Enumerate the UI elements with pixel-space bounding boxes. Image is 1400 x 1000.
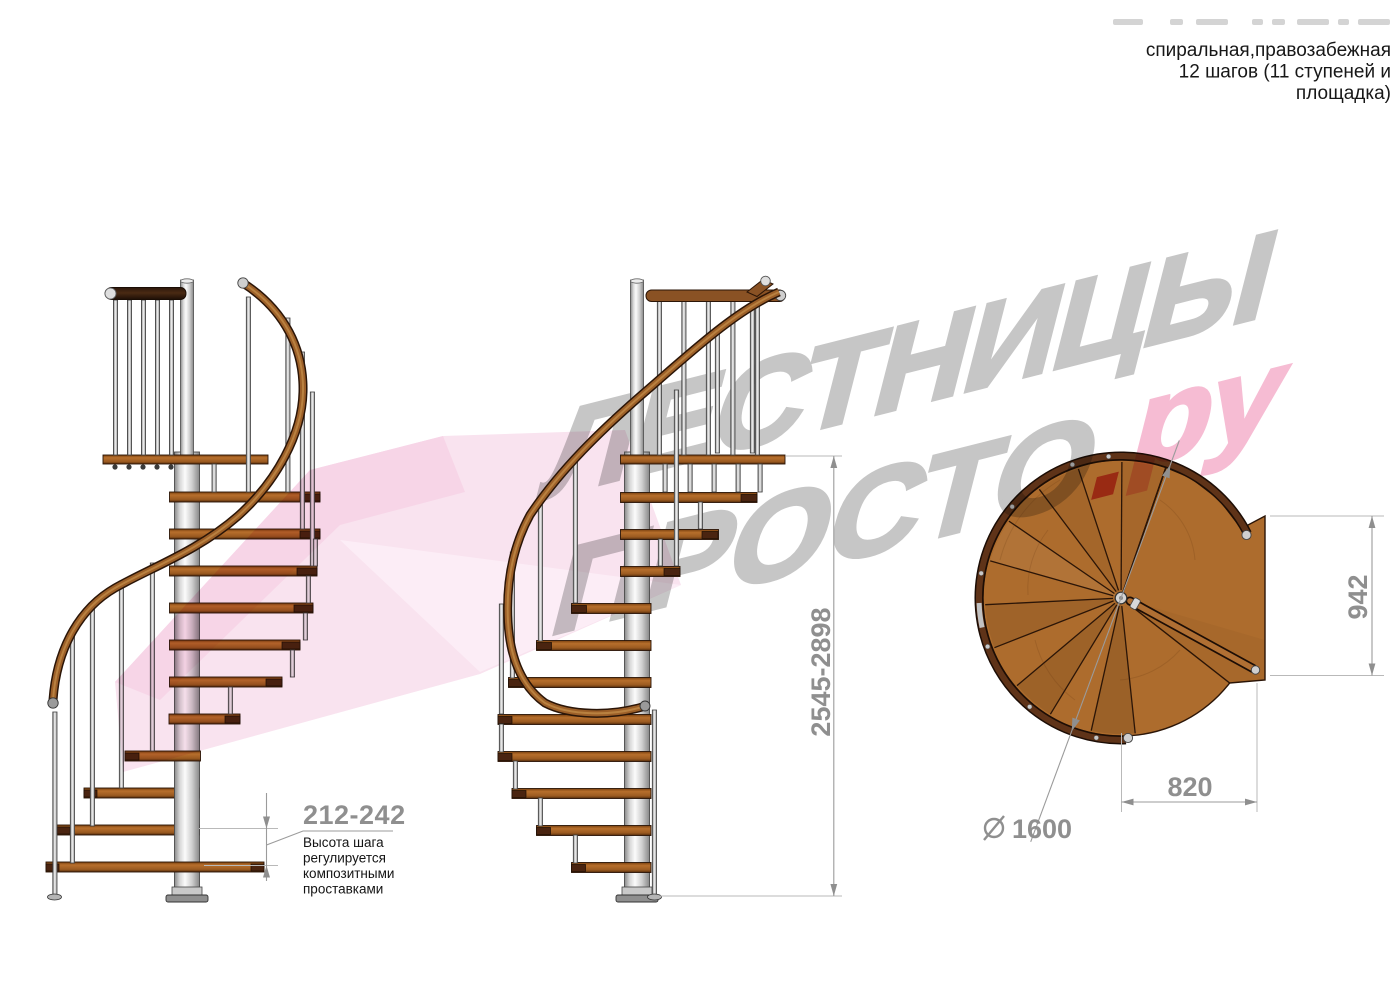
svg-text:820: 820 xyxy=(1167,772,1212,802)
svg-text:композитными: композитными xyxy=(303,866,394,881)
svg-text:регулируется: регулируется xyxy=(303,851,386,866)
svg-text:спиральная,правозабежная: спиральная,правозабежная xyxy=(1146,40,1391,61)
svg-text:942: 942 xyxy=(1343,574,1373,619)
svg-text:12 шагов (11 ступеней и: 12 шагов (11 ступеней и xyxy=(1179,62,1391,83)
svg-text:площадка): площадка) xyxy=(1296,83,1391,104)
svg-text:1600: 1600 xyxy=(1012,814,1072,844)
svg-text:2545-2898: 2545-2898 xyxy=(806,607,836,736)
svg-text:212-242: 212-242 xyxy=(303,800,406,830)
svg-text:проставками: проставками xyxy=(303,882,383,897)
svg-text:Высота шага: Высота шага xyxy=(303,835,384,850)
